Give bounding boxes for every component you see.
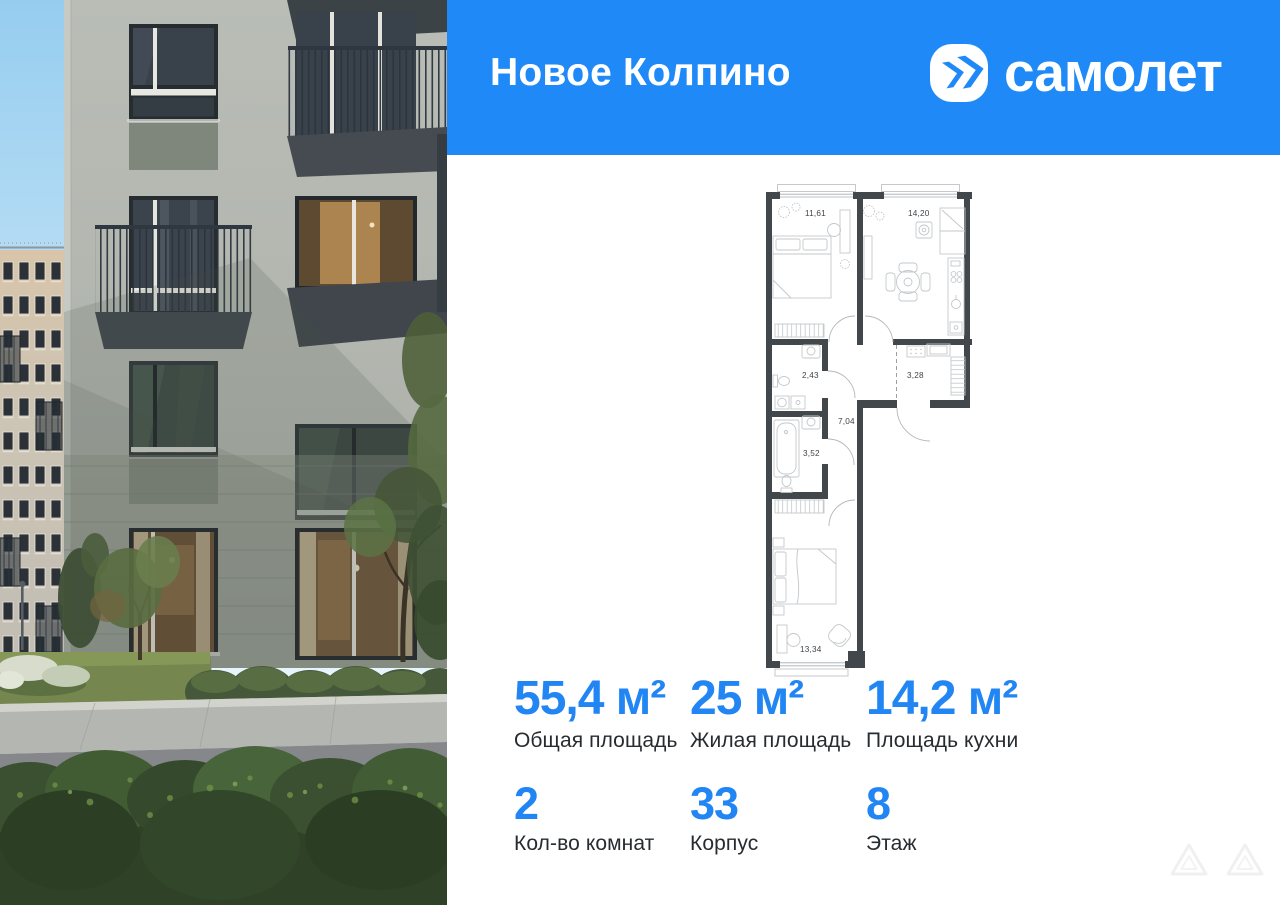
room-label: 2,43 — [802, 371, 819, 380]
room-label: 11,61 — [805, 209, 826, 218]
stat-floor-label: Этаж — [866, 832, 1076, 856]
plan-walls — [766, 192, 972, 668]
room-label: 3,52 — [803, 449, 820, 458]
building-photo-illustration — [0, 0, 447, 905]
stat-kitchen-area-value: 14,2 м² — [866, 675, 1076, 723]
room-label: 14,20 — [908, 209, 930, 218]
room-label: 7,04 — [838, 417, 855, 426]
samolet-chevron-icon — [930, 44, 988, 102]
floor-plan: 11,61 14,20 2,43 3,28 7,04 3,52 13,34 — [758, 182, 975, 682]
bedroom-bottom-furniture — [773, 538, 853, 653]
room-label: 13,34 — [800, 645, 822, 654]
brand-logo: самолет — [930, 44, 1222, 102]
header-bar: Новое Колпино самолет — [447, 0, 1280, 155]
watermark — [1170, 842, 1280, 891]
floor-plan-drawing: 11,61 14,20 2,43 3,28 7,04 3,52 13,34 — [758, 182, 975, 682]
project-title: Новое Колпино — [490, 51, 791, 95]
watermark-triangle-icon — [1170, 842, 1280, 886]
building-photo — [0, 0, 447, 905]
stat-floor-value: 8 — [866, 781, 1076, 826]
brand-name: самолет — [1004, 45, 1222, 100]
room-label: 3,28 — [907, 371, 924, 380]
stat-kitchen-area-label: Площадь кухни — [866, 729, 1076, 753]
stat-kitchen-area: 14,2 м² Площадь кухни — [866, 675, 1076, 753]
stat-floor: 8 Этаж — [866, 781, 1076, 856]
kitchen-furniture — [864, 206, 966, 336]
listing-card: Новое Колпино самолет — [0, 0, 1280, 905]
